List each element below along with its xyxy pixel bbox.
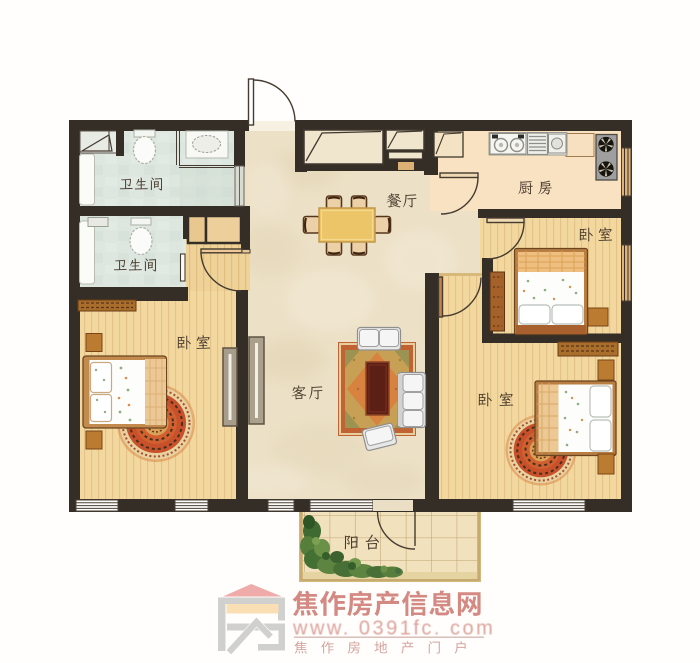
- svg-text:www. 0391fc. com: www. 0391fc. com: [292, 618, 495, 640]
